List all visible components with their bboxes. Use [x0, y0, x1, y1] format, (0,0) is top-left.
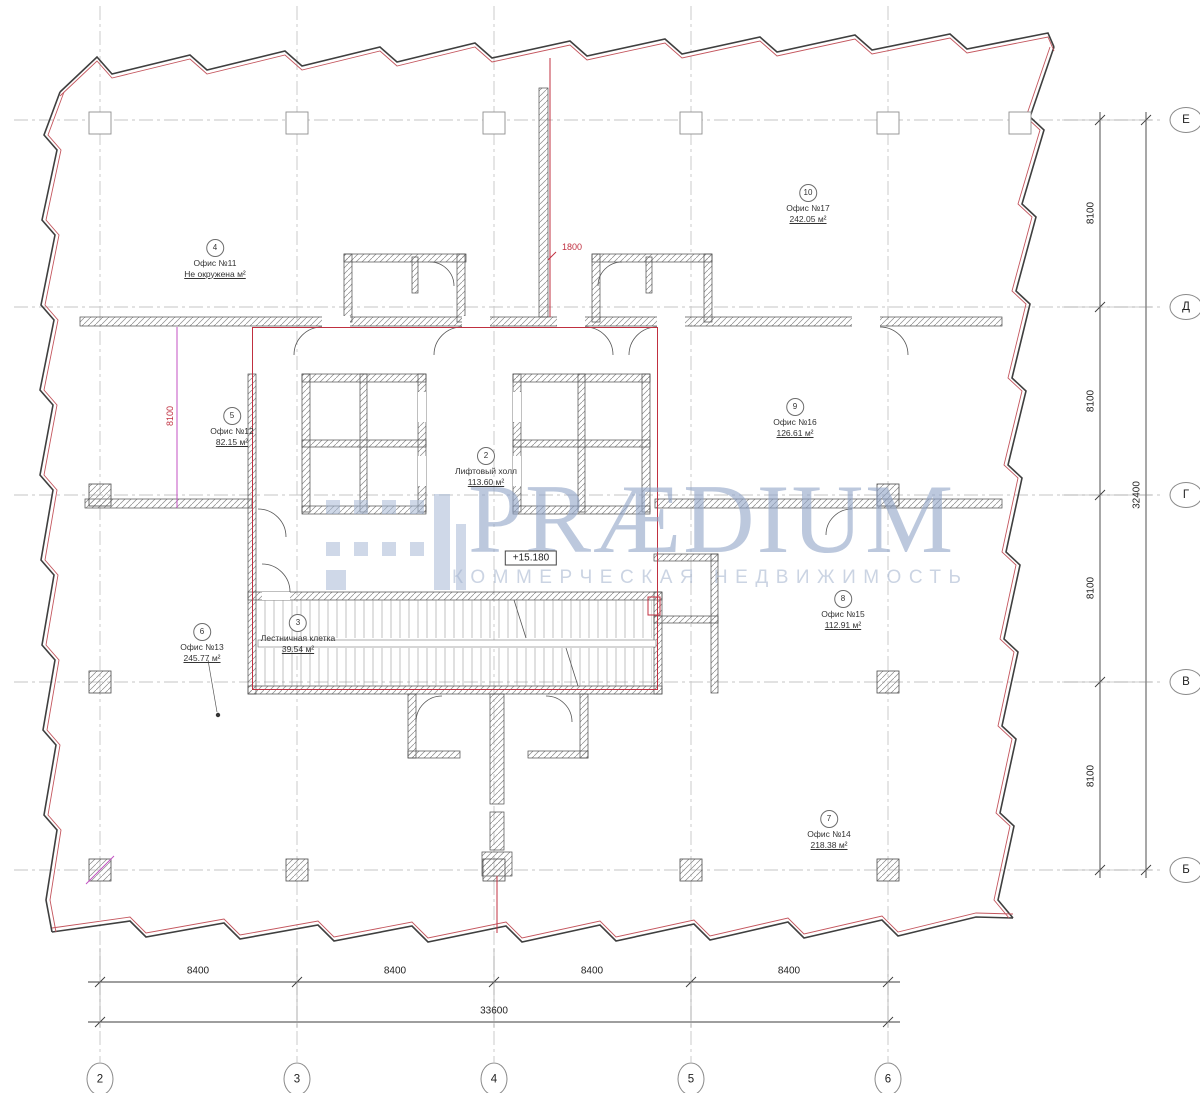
room-area: 218.38 м²	[807, 840, 851, 851]
room-label-office-13: 6 Офис №13 245.77 м²	[180, 623, 224, 663]
leader-line	[208, 660, 220, 717]
dimension-label: 8100	[1086, 390, 1097, 412]
room-number-badge: 10	[799, 184, 817, 202]
axis-bubble-3: 3	[284, 1063, 311, 1093]
room-area: 113.60 м²	[455, 477, 517, 488]
room-name: Лифтовый холл	[455, 466, 517, 477]
dimension-label-total: 32400	[1132, 481, 1143, 509]
axis-bubble-G: Г	[1170, 482, 1200, 508]
room-name: Офис №15	[821, 609, 865, 620]
dimension-label: 8400	[581, 966, 603, 977]
room-label-office-16: 9 Офис №16 126.61 м²	[773, 398, 817, 438]
room-number-badge: 7	[820, 810, 838, 828]
room-name: Офис №12	[210, 426, 254, 437]
floor-plan-canvas: PRÆDIUM КОММЕРЧЕСКАЯ НЕДВИЖИМОСТЬ 4 Офис…	[0, 0, 1200, 1093]
room-name: Офис №16	[773, 417, 817, 428]
room-label-staircase: 3 Лестничная клетка 39.54 м²	[261, 614, 335, 654]
room-area: 82.15 м²	[210, 437, 254, 448]
room-area: 39.54 м²	[261, 644, 335, 655]
room-number-badge: 3	[289, 614, 307, 632]
room-number-badge: 8	[834, 590, 852, 608]
dimension-label: 8100	[1086, 202, 1097, 224]
room-area: 126.61 м²	[773, 428, 817, 439]
room-name: Офис №11	[184, 258, 246, 269]
room-number-badge: 9	[786, 398, 804, 416]
room-area: 245.77 м²	[180, 653, 224, 664]
room-label-office-15: 8 Офис №15 112.91 м²	[821, 590, 865, 630]
axis-bubble-6: 6	[875, 1063, 902, 1093]
axis-bubble-4: 4	[481, 1063, 508, 1093]
red-dimension-label-top: 1800	[562, 242, 582, 252]
room-area: Не окружена м²	[184, 269, 246, 280]
axis-bubble-D: Д	[1170, 294, 1200, 320]
room-number-badge: 2	[477, 447, 495, 465]
axis-bubble-5: 5	[678, 1063, 705, 1093]
dimension-label: 8400	[187, 966, 209, 977]
axis-bubble-E: Е	[1170, 107, 1200, 133]
level-mark: +15.180	[505, 551, 557, 566]
room-name: Офис №17	[786, 203, 830, 214]
room-area: 112.91 м²	[821, 620, 865, 631]
room-number-badge: 4	[206, 239, 224, 257]
room-label-office-12: 5 Офис №12 82.15 м²	[210, 407, 254, 447]
room-number-badge: 5	[223, 407, 241, 425]
room-name: Офис №13	[180, 642, 224, 653]
praedium-logo-icon	[326, 494, 466, 590]
room-number-badge: 6	[193, 623, 211, 641]
room-label-office-14: 7 Офис №14 218.38 м²	[807, 810, 851, 850]
room-label-lift-hall: 2 Лифтовый холл 113.60 м²	[455, 447, 517, 487]
room-name: Лестничная клетка	[261, 633, 335, 644]
red-dimension-label-left: 8100	[165, 406, 175, 426]
dimension-label: 8100	[1086, 765, 1097, 787]
room-name: Офис №14	[807, 829, 851, 840]
dimension-label: 8400	[778, 966, 800, 977]
dimension-label: 8100	[1086, 577, 1097, 599]
room-area: 242.05 м²	[786, 214, 830, 225]
watermark-subtitle: КОММЕРЧЕСКАЯ НЕДВИЖИМОСТЬ	[452, 567, 969, 589]
axis-bubble-2: 2	[87, 1063, 114, 1093]
room-label-office-11: 4 Офис №11 Не окружена м²	[184, 239, 246, 279]
room-label-office-17: 10 Офис №17 242.05 м²	[786, 184, 830, 224]
dimension-label: 8400	[384, 966, 406, 977]
axis-bubble-B: Б	[1170, 857, 1200, 883]
axis-bubble-V: В	[1170, 669, 1200, 695]
dimension-label-total: 33600	[480, 1006, 508, 1017]
